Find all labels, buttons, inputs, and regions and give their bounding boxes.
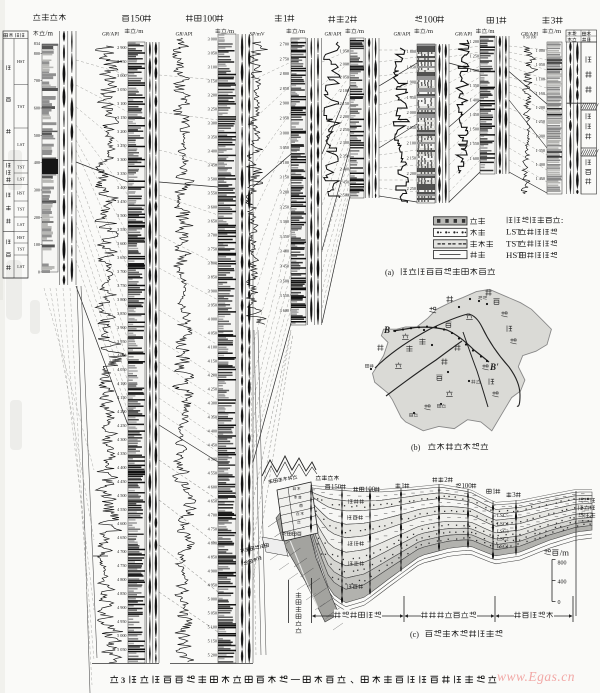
svg-text:1 050: 1 050 xyxy=(536,62,545,67)
svg-text:/m: /m xyxy=(488,28,496,35)
svg-text:4 850: 4 850 xyxy=(117,591,126,596)
svg-text:150: 150 xyxy=(130,14,145,24)
svg-text:2 250: 2 250 xyxy=(340,127,349,132)
svg-text:0: 0 xyxy=(38,270,40,275)
svg-text:3 950: 3 950 xyxy=(208,303,217,308)
svg-text:5 000: 5 000 xyxy=(117,633,126,638)
svg-text:300: 300 xyxy=(34,188,40,193)
svg-text:1 450: 1 450 xyxy=(536,176,545,181)
svg-text:4 700: 4 700 xyxy=(208,513,217,518)
svg-text:400: 400 xyxy=(558,580,567,586)
svg-text:4 450: 4 450 xyxy=(208,443,217,448)
svg-text:4 650: 4 650 xyxy=(208,499,217,504)
svg-text:/m: /m xyxy=(46,30,54,38)
svg-text:1 800: 1 800 xyxy=(407,49,416,54)
svg-text:/m: /m xyxy=(560,547,569,557)
svg-text:/m: /m xyxy=(426,28,434,35)
svg-text:834: 834 xyxy=(34,41,41,46)
svg-text:LST: LST xyxy=(17,222,25,227)
svg-text:600: 600 xyxy=(34,106,40,111)
svg-text:2 050: 2 050 xyxy=(407,125,416,130)
svg-text:3 900: 3 900 xyxy=(117,325,126,330)
svg-text:3 300: 3 300 xyxy=(117,157,126,162)
svg-text:1 300: 1 300 xyxy=(536,134,545,139)
svg-text:2 400: 2 400 xyxy=(340,166,349,171)
svg-text:2: 2 xyxy=(444,477,448,484)
svg-text:700: 700 xyxy=(34,78,40,83)
svg-text:GR/API: GR/API xyxy=(102,32,119,38)
svg-text:4 200: 4 200 xyxy=(208,373,217,378)
svg-text:TST: TST xyxy=(17,247,25,252)
svg-text:1: 1 xyxy=(283,14,288,24)
svg-text:GR/API: GR/API xyxy=(393,32,410,38)
svg-text:4 000: 4 000 xyxy=(208,317,217,322)
svg-text:3 050: 3 050 xyxy=(117,87,126,92)
svg-text:4 450: 4 450 xyxy=(117,479,126,484)
svg-text:2 950: 2 950 xyxy=(280,116,289,121)
svg-text:200: 200 xyxy=(34,215,40,220)
svg-text:4 750: 4 750 xyxy=(117,563,126,568)
svg-text:3 200: 3 200 xyxy=(117,129,126,134)
svg-text:3 100: 3 100 xyxy=(208,65,217,70)
svg-text:3 350: 3 350 xyxy=(280,234,289,239)
svg-text:3 000: 3 000 xyxy=(280,130,289,135)
svg-text:3 100: 3 100 xyxy=(117,101,126,106)
svg-text:4 300: 4 300 xyxy=(208,401,217,406)
svg-text:3 550: 3 550 xyxy=(208,191,217,196)
svg-text:LSC2: LSC2 xyxy=(497,538,509,543)
svg-text:LSC5: LSC5 xyxy=(497,514,509,519)
svg-text:5 150: 5 150 xyxy=(208,639,217,644)
svg-text:GR/API: GR/API xyxy=(175,32,192,38)
svg-text:HST: HST xyxy=(17,59,25,64)
svg-text:3 950: 3 950 xyxy=(117,339,126,344)
svg-text:100: 100 xyxy=(365,487,376,494)
svg-text:3 000: 3 000 xyxy=(208,37,217,42)
svg-text:4 050: 4 050 xyxy=(117,367,126,372)
svg-text:LSC1: LSC1 xyxy=(497,545,509,550)
svg-text:3 600: 3 600 xyxy=(280,308,289,313)
svg-text:5 100: 5 100 xyxy=(208,625,217,630)
svg-text:2 950: 2 950 xyxy=(117,59,126,64)
svg-text:100: 100 xyxy=(203,14,218,24)
svg-text:1 200: 1 200 xyxy=(470,39,479,44)
svg-text:4 900: 4 900 xyxy=(117,605,126,610)
svg-text:150: 150 xyxy=(331,484,342,491)
svg-text:3: 3 xyxy=(551,16,556,26)
svg-text:1 000: 1 000 xyxy=(536,48,545,53)
svg-text:LSC4: LSC4 xyxy=(497,523,509,528)
svg-text:2 350: 2 350 xyxy=(340,153,349,158)
svg-text:1 200: 1 200 xyxy=(536,105,545,110)
svg-text:3 450: 3 450 xyxy=(208,163,217,168)
svg-text:SP/mV: SP/mV xyxy=(249,32,264,38)
svg-text::: : xyxy=(561,215,563,225)
svg-text:3 600: 3 600 xyxy=(208,205,217,210)
svg-text:4 500: 4 500 xyxy=(208,457,217,462)
svg-text:3 900: 3 900 xyxy=(208,289,217,294)
svg-text:3 250: 3 250 xyxy=(117,143,126,148)
svg-text:4 100: 4 100 xyxy=(208,345,217,350)
svg-text:2 200: 2 200 xyxy=(407,171,416,176)
svg-text:1 150: 1 150 xyxy=(536,91,545,96)
svg-text:4 400: 4 400 xyxy=(117,465,126,470)
svg-text:3 650: 3 650 xyxy=(208,219,217,224)
svg-text:4 500: 4 500 xyxy=(117,493,126,498)
svg-text:500: 500 xyxy=(34,133,40,138)
svg-text:800: 800 xyxy=(34,51,40,56)
svg-text:3 350: 3 350 xyxy=(208,135,217,140)
svg-text:4 650: 4 650 xyxy=(117,535,126,540)
svg-text:TST: TST xyxy=(506,238,522,248)
svg-text:4 950: 4 950 xyxy=(208,583,217,588)
svg-text:2 450: 2 450 xyxy=(340,180,349,185)
svg-text:3 800: 3 800 xyxy=(117,297,126,302)
svg-text:HST: HST xyxy=(17,190,25,195)
svg-text:1 950: 1 950 xyxy=(407,95,416,100)
svg-text:(b): (b) xyxy=(411,443,421,452)
svg-text:0 50 100: 0 50 100 xyxy=(523,36,536,40)
svg-text:4 300: 4 300 xyxy=(117,437,126,442)
svg-text:1 950: 1 950 xyxy=(340,49,349,54)
svg-text:3 850: 3 850 xyxy=(117,311,126,316)
svg-text:3 400: 3 400 xyxy=(280,249,289,254)
svg-text:LST: LST xyxy=(506,227,522,237)
svg-text:100: 100 xyxy=(462,483,473,490)
svg-text:3 250: 3 250 xyxy=(208,107,217,112)
svg-text:GR/API: GR/API xyxy=(455,32,472,38)
svg-text:3 400: 3 400 xyxy=(208,149,217,154)
svg-text:1: 1 xyxy=(401,483,404,490)
svg-text:3 150: 3 150 xyxy=(208,79,217,84)
svg-text:5 050: 5 050 xyxy=(117,647,126,652)
svg-text:LSC3: LSC3 xyxy=(497,530,509,535)
svg-text:1 850: 1 850 xyxy=(407,64,416,69)
svg-text:TST: TST xyxy=(17,164,25,169)
svg-text:4 800: 4 800 xyxy=(117,577,126,582)
svg-text:3 700: 3 700 xyxy=(208,233,217,238)
svg-text:www.Egas.cn: www.Egas.cn xyxy=(497,669,575,684)
svg-text:3 500: 3 500 xyxy=(280,278,289,283)
svg-text:3 150: 3 150 xyxy=(117,115,126,120)
svg-text:3 800: 3 800 xyxy=(208,261,217,266)
svg-text:4 800: 4 800 xyxy=(208,541,217,546)
svg-text:3 450: 3 450 xyxy=(117,199,126,204)
svg-text:4 150: 4 150 xyxy=(117,395,126,400)
svg-text:4 950: 4 950 xyxy=(117,619,126,624)
svg-text:TST: TST xyxy=(17,104,25,109)
svg-text:4 600: 4 600 xyxy=(208,485,217,490)
svg-text:4 050: 4 050 xyxy=(208,331,217,336)
svg-text:HST: HST xyxy=(506,250,523,260)
svg-text:3 050: 3 050 xyxy=(208,51,217,56)
svg-text:3: 3 xyxy=(121,676,125,685)
svg-text:4 350: 4 350 xyxy=(117,451,126,456)
svg-text:LST: LST xyxy=(17,142,25,147)
svg-text:B: B xyxy=(383,325,390,335)
svg-text:0: 0 xyxy=(558,600,561,606)
svg-text:3 650: 3 650 xyxy=(117,255,126,260)
svg-text:4 200: 4 200 xyxy=(117,409,126,414)
svg-text:4 350: 4 350 xyxy=(208,415,217,420)
svg-text:(c): (c) xyxy=(410,630,419,639)
svg-text:3 200: 3 200 xyxy=(280,190,289,195)
svg-text:1 500: 1 500 xyxy=(470,127,479,132)
svg-text:4 400: 4 400 xyxy=(208,429,217,434)
svg-text:4 100: 4 100 xyxy=(117,381,126,386)
svg-text:1 300: 1 300 xyxy=(470,68,479,73)
svg-text:1 900: 1 900 xyxy=(407,80,416,85)
svg-text:5 050: 5 050 xyxy=(208,611,217,616)
svg-text:2 050: 2 050 xyxy=(340,75,349,80)
svg-text:1 250: 1 250 xyxy=(536,119,545,124)
svg-text:2 900: 2 900 xyxy=(280,101,289,106)
svg-text:1 350: 1 350 xyxy=(470,83,479,88)
svg-text:4 750: 4 750 xyxy=(208,527,217,532)
svg-text:3 450: 3 450 xyxy=(280,264,289,269)
svg-text:3 550: 3 550 xyxy=(280,293,289,298)
svg-text:3 750: 3 750 xyxy=(117,283,126,288)
svg-text:3 300: 3 300 xyxy=(208,121,217,126)
svg-text:4 900: 4 900 xyxy=(208,569,217,574)
svg-text:1 400: 1 400 xyxy=(470,97,479,102)
svg-text:2 700: 2 700 xyxy=(280,42,289,47)
svg-text:3 700: 3 700 xyxy=(117,269,126,274)
svg-text:3 500: 3 500 xyxy=(208,177,217,182)
svg-text:1 250: 1 250 xyxy=(470,54,479,59)
svg-text:2 800: 2 800 xyxy=(280,71,289,76)
svg-text:4 250: 4 250 xyxy=(117,423,126,428)
svg-text:2 150: 2 150 xyxy=(407,156,416,161)
svg-text:GR/API: GR/API xyxy=(324,32,341,38)
svg-text:1 450: 1 450 xyxy=(470,112,479,117)
svg-text:3 350: 3 350 xyxy=(117,171,126,176)
svg-text:/m: /m xyxy=(554,28,562,35)
svg-text:/m: /m xyxy=(136,28,144,35)
svg-text:4 550: 4 550 xyxy=(117,507,126,512)
svg-text:400: 400 xyxy=(34,160,40,165)
svg-text:5 000: 5 000 xyxy=(208,597,217,602)
svg-text:1 400: 1 400 xyxy=(536,162,545,167)
svg-text:3 000: 3 000 xyxy=(117,73,126,78)
svg-text:(a): (a) xyxy=(385,268,394,277)
svg-text:LST: LST xyxy=(17,264,25,269)
svg-text:4 150: 4 150 xyxy=(208,359,217,364)
svg-text:1 550: 1 550 xyxy=(470,141,479,146)
svg-text:3 600: 3 600 xyxy=(117,241,126,246)
svg-text:/m: /m xyxy=(357,28,365,35)
svg-text:3 750: 3 750 xyxy=(208,247,217,252)
svg-text:/m: /m xyxy=(298,28,306,35)
svg-text:4 000: 4 000 xyxy=(117,353,126,358)
svg-text:3 550: 3 550 xyxy=(117,227,126,232)
svg-text:LST: LST xyxy=(17,176,25,181)
svg-text:2 000: 2 000 xyxy=(340,62,349,67)
svg-text:3 300: 3 300 xyxy=(280,219,289,224)
svg-text:2 900: 2 900 xyxy=(117,45,126,50)
svg-text:100: 100 xyxy=(423,15,438,25)
svg-text:3 850: 3 850 xyxy=(208,275,217,280)
svg-text:100: 100 xyxy=(34,242,40,247)
svg-text:4 850: 4 850 xyxy=(208,555,217,560)
svg-text:1 350: 1 350 xyxy=(536,148,545,153)
svg-text:3 250: 3 250 xyxy=(280,204,289,209)
svg-text:2 200: 2 200 xyxy=(340,114,349,119)
svg-text:3 200: 3 200 xyxy=(208,93,217,98)
svg-text:2 150: 2 150 xyxy=(340,101,349,106)
svg-text:3 150: 3 150 xyxy=(280,175,289,180)
svg-text:4 600: 4 600 xyxy=(117,521,126,526)
svg-text:HST: HST xyxy=(17,235,25,240)
svg-text:4 250: 4 250 xyxy=(208,387,217,392)
svg-text:4 550: 4 550 xyxy=(208,471,217,476)
svg-text:3 500: 3 500 xyxy=(117,213,126,218)
svg-text:2 500: 2 500 xyxy=(340,193,349,198)
svg-text:1 100: 1 100 xyxy=(536,77,545,82)
svg-text:2 850: 2 850 xyxy=(280,86,289,91)
svg-text:2 100: 2 100 xyxy=(340,88,349,93)
svg-text:2 000: 2 000 xyxy=(407,110,416,115)
svg-text:3: 3 xyxy=(512,492,516,499)
svg-text:2 100: 2 100 xyxy=(407,140,416,145)
svg-text:3 050: 3 050 xyxy=(280,145,289,150)
svg-text:1: 1 xyxy=(495,16,500,26)
svg-text:2: 2 xyxy=(345,15,350,25)
svg-text:1 600: 1 600 xyxy=(470,156,479,161)
svg-text:4 700: 4 700 xyxy=(117,549,126,554)
svg-text:800: 800 xyxy=(558,561,567,567)
svg-text:3 100: 3 100 xyxy=(280,160,289,165)
svg-text:B': B' xyxy=(489,362,499,372)
svg-text:2 300: 2 300 xyxy=(340,140,349,145)
svg-text:2 250: 2 250 xyxy=(407,186,416,191)
svg-text:TST: TST xyxy=(17,207,25,212)
svg-text:2 750: 2 750 xyxy=(280,56,289,61)
svg-text:1: 1 xyxy=(492,489,495,496)
svg-text:5 200: 5 200 xyxy=(208,653,217,658)
svg-text:3 400: 3 400 xyxy=(117,185,126,190)
